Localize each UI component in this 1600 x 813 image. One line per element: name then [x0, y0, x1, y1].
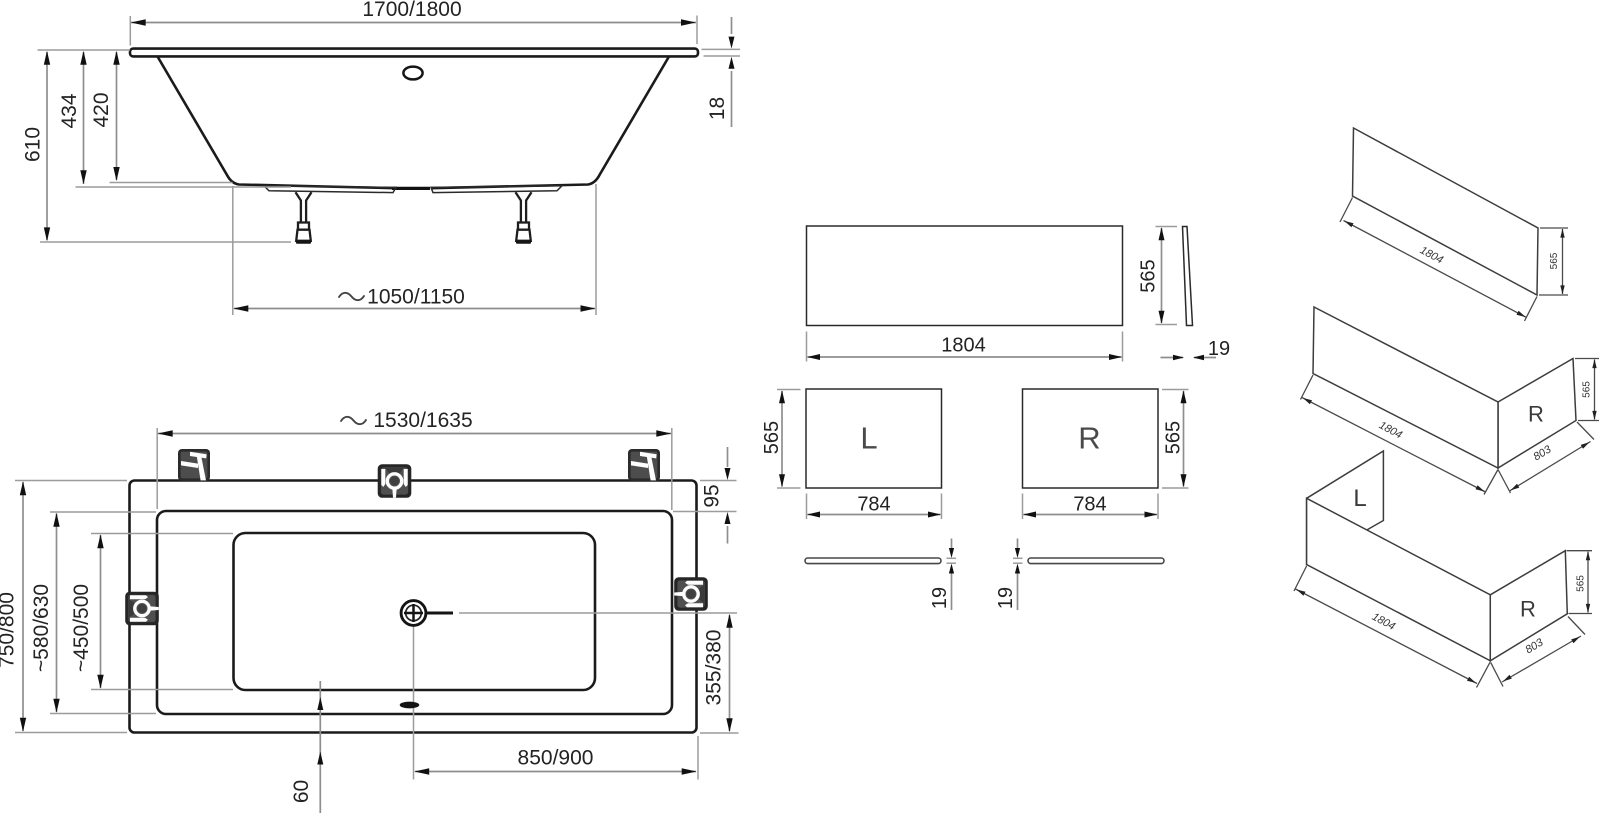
svg-text:95: 95 — [701, 484, 724, 507]
svg-text:850/900: 850/900 — [518, 747, 594, 770]
svg-text:565: 565 — [1163, 421, 1185, 454]
svg-text:784: 784 — [1073, 494, 1106, 516]
svg-text:1050/1150: 1050/1150 — [367, 286, 465, 309]
svg-text:1700/1800: 1700/1800 — [362, 0, 461, 21]
svg-text:565: 565 — [1582, 381, 1593, 398]
svg-text:19: 19 — [929, 587, 951, 609]
svg-text:355/380: 355/380 — [703, 630, 726, 706]
svg-text:434: 434 — [58, 93, 81, 128]
svg-text:L: L — [1353, 485, 1366, 512]
svg-text:~580/630: ~580/630 — [30, 584, 53, 672]
svg-text:60: 60 — [290, 780, 313, 803]
svg-text:565: 565 — [1138, 259, 1160, 292]
svg-text:565: 565 — [761, 421, 783, 454]
svg-text:750/800: 750/800 — [0, 592, 19, 668]
svg-text:R: R — [1528, 402, 1544, 427]
svg-text:~450/500: ~450/500 — [70, 584, 93, 672]
svg-text:1530/1635: 1530/1635 — [373, 409, 472, 432]
svg-text:L: L — [860, 421, 877, 456]
svg-text:R: R — [1078, 421, 1100, 456]
svg-text:19: 19 — [1208, 338, 1230, 360]
svg-text:1804: 1804 — [941, 335, 986, 357]
svg-text:19: 19 — [995, 587, 1017, 609]
svg-text:784: 784 — [857, 494, 890, 516]
svg-text:610: 610 — [22, 127, 45, 162]
svg-text:565: 565 — [1576, 575, 1587, 592]
svg-text:565: 565 — [1549, 252, 1560, 269]
svg-text:18: 18 — [706, 97, 729, 120]
svg-text:420: 420 — [90, 92, 113, 127]
svg-text:R: R — [1520, 597, 1536, 622]
